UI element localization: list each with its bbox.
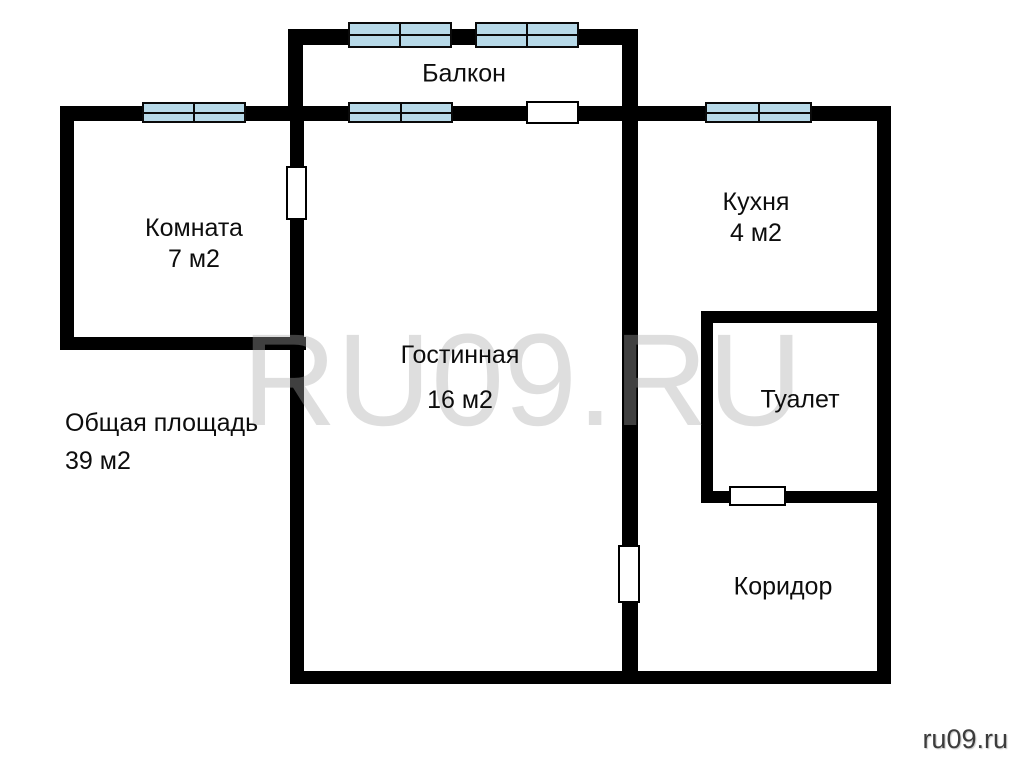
window-mullion-vertical — [400, 104, 402, 121]
total-area-note: Общая площадь 39 м2 — [65, 404, 258, 480]
wall-toilet-left — [701, 311, 713, 503]
room-label-toilet: Туалет — [760, 385, 839, 416]
wall-balcony-top — [288, 29, 637, 45]
wall-room-bottom — [60, 337, 306, 350]
room-label-kitchen-line: Кухня — [723, 187, 790, 218]
wall-toilet-top — [701, 311, 877, 323]
toilet-door-opening — [729, 486, 786, 506]
window-mullion-vertical — [526, 24, 528, 46]
living-door-opening — [618, 545, 640, 603]
wall-outer-left — [60, 106, 74, 350]
balcony-window-left-icon — [348, 22, 452, 48]
balcony-door-opening — [526, 101, 579, 124]
room-label-room-line: 7 м2 — [145, 244, 243, 275]
room-label-corridor: Коридор — [734, 572, 833, 603]
wall-outer-right — [877, 106, 891, 684]
floor-plan: БалконКомната7 м2Гостинная16 м2Кухня4 м2… — [0, 0, 1024, 768]
room-label-living: Гостинная16 м2 — [401, 333, 520, 423]
room-window-icon — [142, 102, 246, 123]
room-label-living-line: Гостинная — [401, 333, 520, 378]
window-mullion-vertical — [758, 104, 760, 121]
room-label-kitchen-line: 4 м2 — [723, 218, 790, 249]
room-label-room: Комната7 м2 — [145, 213, 243, 275]
window-mullion-vertical — [193, 104, 195, 121]
room-door-opening — [286, 166, 307, 220]
room-label-balcony-line: Балкон — [422, 59, 506, 90]
total-area-value: 39 м2 — [65, 442, 258, 480]
site-credit-text: ru09.ru — [922, 724, 1008, 755]
room-label-kitchen: Кухня4 м2 — [723, 187, 790, 249]
room-label-living-line: 16 м2 — [401, 378, 520, 423]
room-label-balcony: Балкон — [422, 59, 506, 90]
window-mullion-vertical — [399, 24, 401, 46]
room-label-toilet-line: Туалет — [760, 385, 839, 416]
wall-balcony-left — [288, 29, 303, 106]
living-window-icon — [348, 102, 453, 123]
room-label-room-line: Комната — [145, 213, 243, 244]
total-area-title: Общая площадь — [65, 404, 258, 442]
wall-outer-bottom — [290, 671, 891, 684]
room-label-corridor-line: Коридор — [734, 572, 833, 603]
kitchen-window-icon — [705, 102, 812, 123]
wall-toilet-bottom — [701, 491, 877, 503]
floor-plan-canvas: БалконКомната7 м2Гостинная16 м2Кухня4 м2… — [0, 0, 1024, 768]
balcony-window-right-icon — [475, 22, 579, 48]
